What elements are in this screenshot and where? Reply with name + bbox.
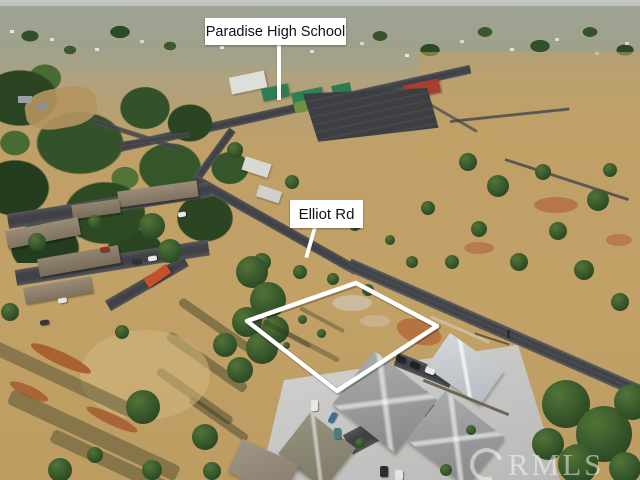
tree-canopy [510,253,528,271]
tree-canopy [587,189,609,211]
conifer-large [227,357,253,383]
school-label-pointer-line [277,44,281,100]
clearing-building-2 [38,104,48,110]
parcel-light-patch [360,315,390,327]
school-label: Paradise High School [205,18,346,45]
tree-canopy [574,260,594,280]
shrub [87,447,103,463]
tree-canopy [603,163,617,177]
road-label: Elliot Rd [290,200,363,228]
parked-car-white-6 [395,470,403,480]
distant-buildings-specks [10,30,14,33]
shrub [385,235,395,245]
crmls-c-logo-icon [465,443,509,480]
tree-canopy [139,213,165,239]
tree-canopy [28,233,46,251]
tree-canopy [158,239,182,263]
tree-canopy [471,221,487,237]
road-label-text: Elliot Rd [299,206,355,223]
parcel-light-patch [332,295,372,311]
parked-car-white-5 [311,400,318,411]
shrub [362,284,374,296]
tree-canopy [192,424,218,450]
tree-canopy [487,175,509,197]
shrub [293,265,307,279]
parked-car-dark-2 [40,319,50,325]
shrub [327,273,339,285]
tree-canopy [421,201,435,215]
crmls-watermark-text: RMLS [508,449,604,480]
utility-pole [507,330,510,338]
tree-canopy [609,452,640,480]
slim-tree [283,342,290,349]
tree-canopy [227,142,243,158]
tree-canopy [285,175,299,189]
shrub [1,303,19,321]
slim-tree [317,329,326,338]
tree-canopy [535,164,551,180]
school-parking-lot [300,88,440,144]
shrub [440,464,452,476]
shrub [406,256,418,268]
shrub [142,460,162,480]
shrub [466,425,476,435]
red-dirt-patch [464,242,494,254]
crmls-watermark: RMLS [470,448,604,480]
school-label-text: Paradise High School [206,24,345,40]
shrub [203,462,221,480]
red-dirt-patch [606,234,632,246]
conifer-large [213,333,237,357]
parked-car-teal [334,428,341,439]
parked-car-white-2 [58,297,68,303]
tree-canopy [611,293,629,311]
tree-canopy [88,215,102,229]
tree-canopy [459,153,477,171]
shrub [48,458,72,480]
shrub [355,438,365,448]
tree-canopy [549,222,567,240]
tree-canopy [126,390,160,424]
red-dirt-patch [534,197,578,213]
slim-tree [298,315,307,324]
aerial-photo: Paradise High School Elliot Rd RMLS [0,0,640,480]
slim-tree-shadow [285,330,340,363]
shrub [115,325,129,339]
tree-canopy [445,255,459,269]
parked-car-dark-5 [380,466,388,477]
clearing-building-1 [18,96,32,103]
